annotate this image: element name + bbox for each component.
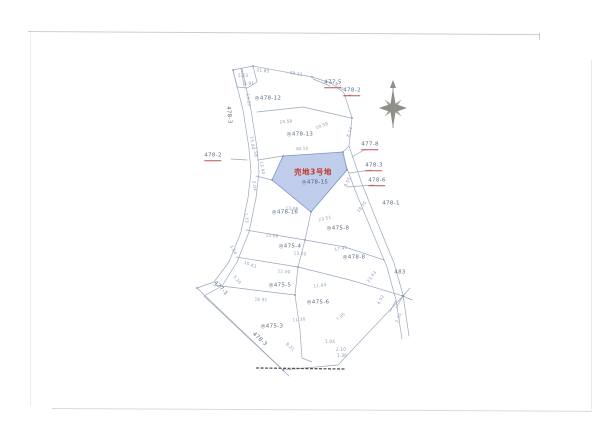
sale-parcel-label: 売地3号地 <box>294 168 332 176</box>
parcel-number-label: ◎478-13 <box>287 132 313 138</box>
parcel-number-label: ◎478-12 <box>255 96 281 102</box>
measurement-label: 23.51 <box>318 215 332 222</box>
measurement-label: 10.43 <box>243 261 257 269</box>
measurement-label: 1.58 <box>252 147 257 158</box>
measurement-label: 2.31 <box>395 313 403 324</box>
parcel-number-label: 478-2 <box>204 153 221 161</box>
measurement-label: 17.45 <box>334 246 348 252</box>
measurement-label: 38.10 <box>295 147 308 152</box>
parcel-number-label: 483 <box>394 270 405 276</box>
measurement-label: 13.00 <box>293 251 306 256</box>
parcel-number-label: 477-1 <box>212 281 228 297</box>
measurement-label: 2.04 <box>251 181 256 192</box>
parcel-number-label: 478-2 <box>343 88 360 96</box>
map-text-layer: 売地3号地◎478-15477-5478-2◎478-12◎478-13478-… <box>0 0 600 424</box>
parcel-number-label: ◎475-3 <box>261 324 284 330</box>
parcel-number-label: 478-1 <box>382 201 399 207</box>
parcel-number-label: 478-3 <box>365 163 382 171</box>
parcel-number-label: 478-6 <box>368 178 385 186</box>
measurement-label: 3.04 <box>229 245 238 256</box>
measurement-label: 16.91 <box>254 297 267 302</box>
measurement-label: 8.55 <box>344 177 352 188</box>
measurement-label: 12.00 <box>277 269 290 274</box>
measurement-label: 18.35 <box>356 201 367 214</box>
measurement-label: 8.21 <box>285 342 295 352</box>
scanned-cadastral-map-page: 売地3号地◎478-15477-5478-2◎478-12◎478-13478-… <box>0 0 600 424</box>
measurement-label: 21.85 <box>256 68 269 74</box>
parcel-number-label: 477-8 <box>361 142 378 150</box>
measurement-label: 4.29 <box>334 82 344 92</box>
parcel-number-label: 478-3 <box>224 106 231 124</box>
parcel-number-label: ◎475-5 <box>269 283 292 289</box>
measurement-label: 1.36 <box>337 354 347 358</box>
measurement-label: 7.05 <box>336 312 346 322</box>
measurement-label: 23.43 <box>367 270 378 283</box>
parcel-number-label: ◎475-6 <box>307 300 330 306</box>
measurement-label: 13.08 <box>285 206 298 211</box>
parcel-number-label: ◎478-8 <box>343 255 366 261</box>
measurement-label: 11.04 <box>313 283 326 289</box>
parcel-number-label: ◎475-8 <box>327 226 350 232</box>
measurement-label: 29.12 <box>289 71 302 77</box>
measurement-label: 12.40 <box>259 161 265 175</box>
measurement-label: 1.04 <box>325 340 335 344</box>
measurement-label: 24.58 <box>279 119 292 124</box>
measurement-label: 1.73 <box>243 213 248 224</box>
parcel-number-label: ◎475-4 <box>279 244 302 250</box>
sale-parcel-number: ◎478-15 <box>302 180 328 186</box>
measurement-label: 2.10 <box>336 348 346 352</box>
measurement-label: 5.16 <box>232 275 242 285</box>
measurement-label: 11.30 <box>292 317 305 322</box>
measurement-label: 13.57 <box>245 93 251 106</box>
parcel-number-label: 478-3 <box>251 332 268 348</box>
measurement-label: 3.91 <box>244 82 254 86</box>
measurement-label: 15.08 <box>265 233 278 238</box>
measurement-label: 4.52 <box>377 295 385 306</box>
measurement-label: 6.14 <box>346 127 353 138</box>
measurement-label: 5.23 <box>238 74 248 78</box>
measurement-label: 19.58 <box>315 122 329 130</box>
